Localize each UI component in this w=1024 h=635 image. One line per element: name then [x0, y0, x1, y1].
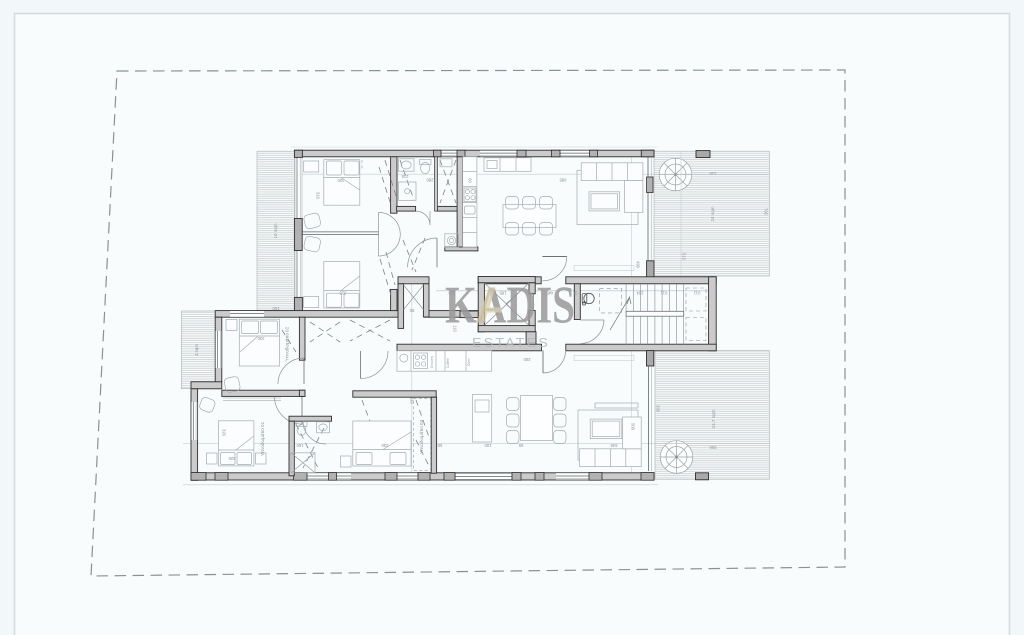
svg-text:65: 65: [518, 443, 523, 448]
svg-text:330: 330: [656, 405, 661, 413]
svg-text:011: 011: [660, 291, 667, 296]
svg-text:500: 500: [631, 423, 636, 431]
svg-text:320: 320: [339, 291, 347, 296]
svg-text:110: 110: [410, 397, 415, 404]
svg-text:224: 224: [636, 291, 644, 296]
svg-text:556: 556: [709, 445, 717, 450]
svg-text:330: 330: [381, 443, 389, 448]
svg-text:10 sqm: 10 sqm: [273, 223, 278, 238]
svg-text:ESTATES: ESTATES: [472, 335, 550, 350]
svg-text:705: 705: [764, 208, 769, 216]
svg-text:24.7 sqm: 24.7 sqm: [711, 409, 716, 428]
svg-text:24 sqm: 24 sqm: [710, 206, 715, 221]
svg-text:150: 150: [296, 443, 304, 448]
svg-text:100: 100: [484, 443, 492, 448]
svg-text:90: 90: [409, 308, 414, 313]
svg-text:228: 228: [709, 171, 717, 176]
svg-text:515: 515: [682, 253, 687, 261]
svg-text:215: 215: [401, 174, 409, 179]
svg-text:200: 200: [523, 357, 531, 362]
svg-text:490: 490: [636, 261, 641, 269]
svg-text:280: 280: [426, 178, 434, 183]
svg-text:685: 685: [559, 178, 567, 183]
svg-text:320: 320: [337, 178, 345, 183]
svg-text:320: 320: [222, 429, 227, 437]
svg-text:Grocery: Grocery: [430, 356, 434, 368]
svg-text:Υπνοδωμάτιο 01: Υπνοδωμάτιο 01: [259, 421, 265, 456]
svg-text:KADIS: KADIS: [445, 277, 575, 335]
svg-text:60: 60: [468, 178, 473, 183]
svg-text:325: 325: [228, 456, 236, 461]
svg-text:011: 011: [693, 291, 700, 296]
svg-text:645: 645: [610, 443, 618, 448]
svg-text:310: 310: [316, 192, 321, 200]
svg-text:60: 60: [437, 443, 442, 448]
svg-text:Coffee: Coffee: [446, 358, 450, 368]
svg-text:4 sqm: 4 sqm: [194, 344, 199, 356]
svg-text:330: 330: [257, 336, 265, 341]
svg-text:Υπνοδωμάτιο 02: Υπνοδωμάτιο 02: [284, 326, 290, 361]
svg-text:Oven: Oven: [467, 358, 471, 366]
svg-text:Υπνοδωμάτιο 03: Υπνοδωμάτιο 03: [418, 419, 424, 454]
